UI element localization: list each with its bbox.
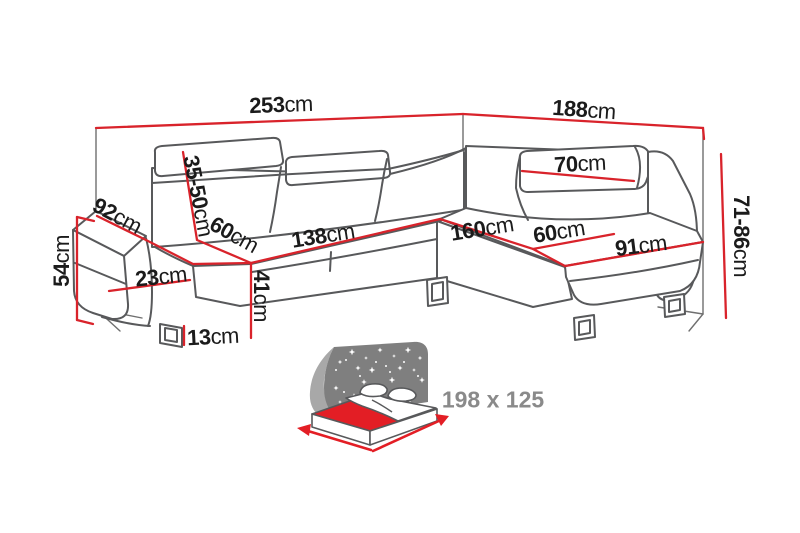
dim-seat-height-label: 41cm	[250, 270, 272, 322]
dim-arm-front-width-label: 23cm	[134, 263, 188, 290]
pillow	[360, 384, 387, 397]
dim-back-height-label: 71-86cm	[730, 195, 752, 277]
dim-total-width-label: 253cm	[249, 93, 313, 117]
sofa-line-drawing	[0, 0, 800, 533]
sofa-dimension-diagram: 253cm 188cm 71-86cm 54cm 92cm 35-50cm 60…	[0, 0, 800, 533]
pillow	[388, 388, 416, 401]
sleeping-function-icon	[297, 342, 449, 451]
dim-arm-height-label: 54cm	[51, 235, 73, 287]
dim-leg-height-label: 13cm	[187, 325, 240, 350]
sleeping-area-size-label: 198 x 125	[442, 389, 544, 412]
dim-headrest-width-label: 70cm	[554, 152, 607, 177]
dim-total-depth-label: 188cm	[552, 97, 617, 123]
